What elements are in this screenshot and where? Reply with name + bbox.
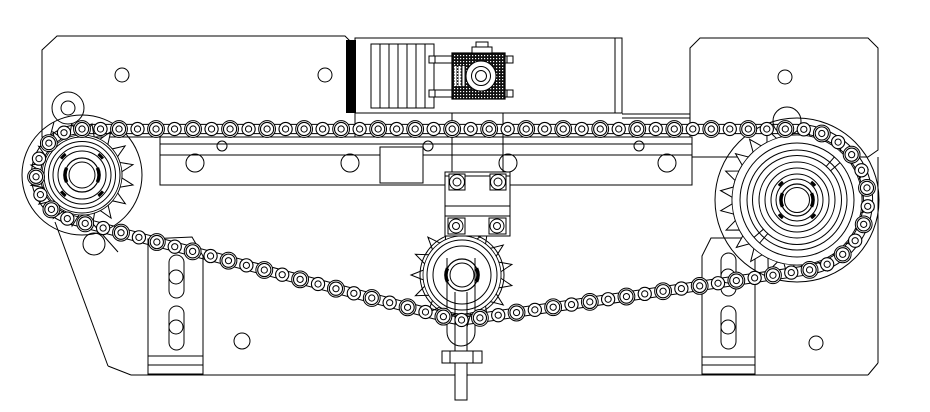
cad-drawing-canvas	[0, 0, 930, 412]
cad-drawing	[0, 0, 930, 412]
